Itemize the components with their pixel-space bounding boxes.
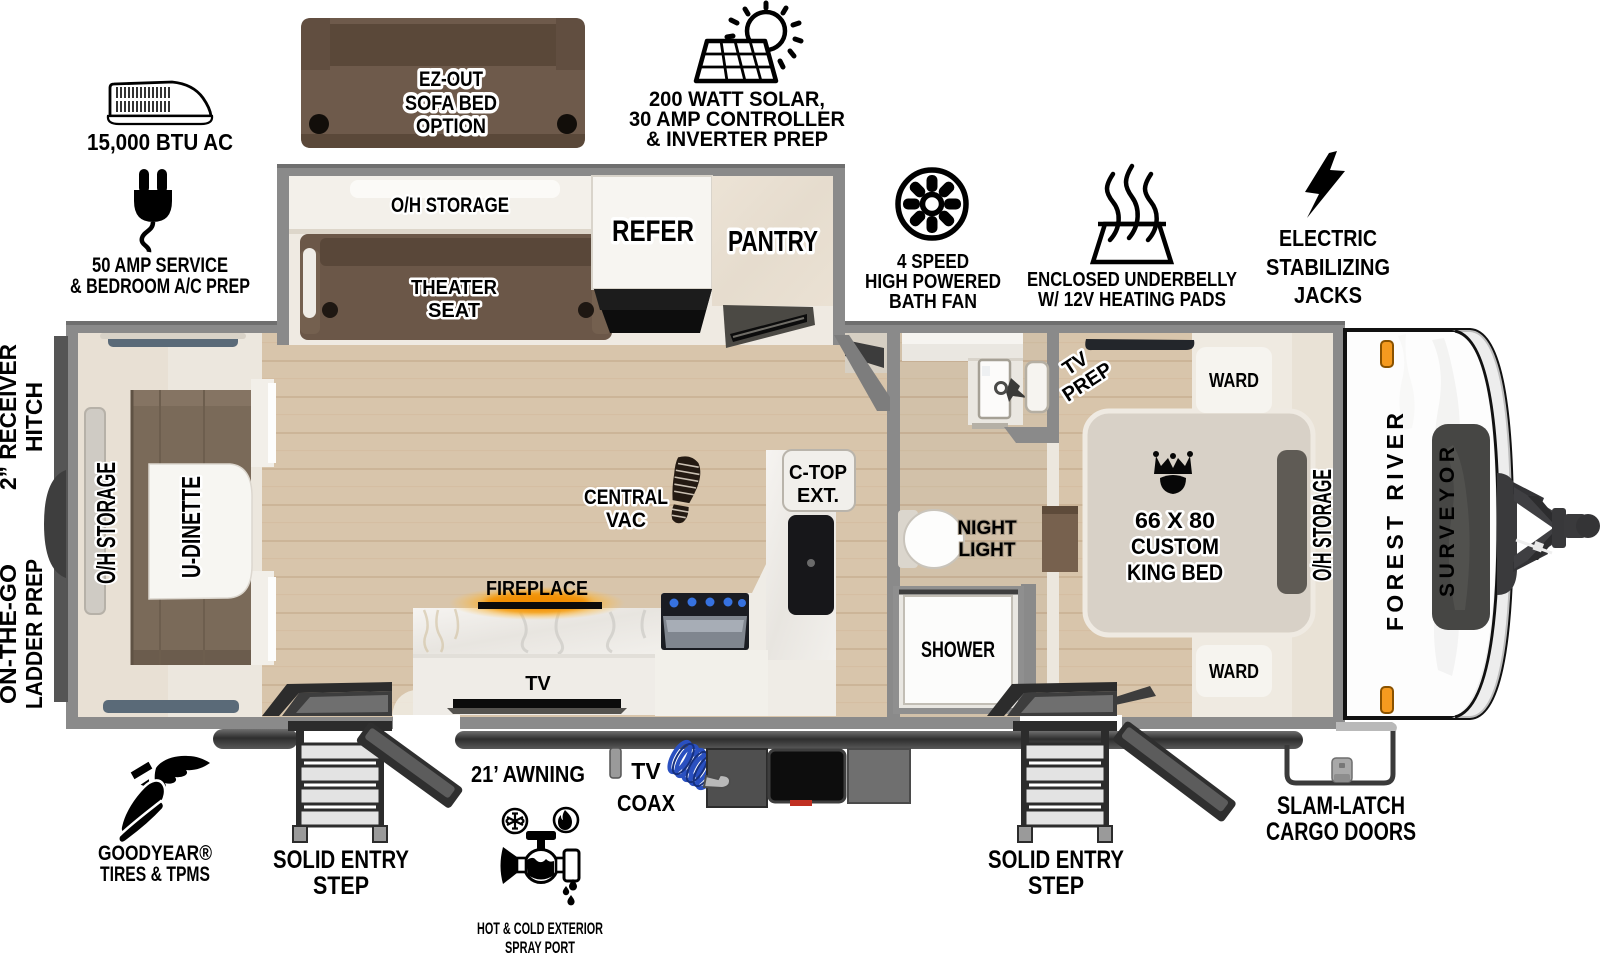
- svg-text:STABILIZING: STABILIZING: [1266, 254, 1390, 280]
- svg-text:STEP: STEP: [1028, 872, 1084, 900]
- svg-text:HITCH: HITCH: [21, 382, 47, 452]
- svg-text:PANTRY: PANTRY: [728, 226, 818, 258]
- svg-text:THEATER: THEATER: [411, 277, 498, 299]
- svg-text:4 SPEED: 4 SPEED: [897, 251, 969, 273]
- svg-text:21’ AWNING: 21’ AWNING: [471, 761, 585, 787]
- svg-text:BATH FAN: BATH FAN: [889, 291, 977, 313]
- svg-text:TV: TV: [631, 758, 661, 784]
- svg-text:2” RECEIVER: 2” RECEIVER: [0, 344, 21, 490]
- svg-text:FOREST RIVER: FOREST RIVER: [1382, 413, 1408, 631]
- svg-text:KING BED: KING BED: [1127, 560, 1223, 585]
- svg-text:WARD: WARD: [1209, 661, 1259, 683]
- svg-text:66 X 80: 66 X 80: [1135, 508, 1215, 533]
- svg-text:WARD: WARD: [1209, 370, 1259, 392]
- svg-text:SOLID ENTRY: SOLID ENTRY: [988, 846, 1124, 874]
- svg-text:STEP: STEP: [313, 872, 369, 900]
- svg-text:TV: TV: [525, 673, 551, 695]
- svg-text:50 AMP SERVICE: 50 AMP SERVICE: [92, 254, 228, 277]
- svg-text:HOT & COLD EXTERIOR: HOT & COLD EXTERIOR: [477, 919, 603, 938]
- svg-text:& INVERTER PREP: & INVERTER PREP: [646, 128, 828, 151]
- svg-text:SEAT: SEAT: [428, 300, 480, 322]
- svg-text:EXT.: EXT.: [797, 485, 839, 507]
- svg-text:TIRES & TPMS: TIRES & TPMS: [100, 863, 210, 886]
- svg-text:REFER: REFER: [612, 215, 694, 248]
- svg-text:SOFA BED: SOFA BED: [405, 92, 497, 115]
- svg-text:O/H STORAGE: O/H STORAGE: [391, 194, 509, 217]
- svg-text:ENCLOSED UNDERBELLY: ENCLOSED UNDERBELLY: [1027, 269, 1238, 291]
- svg-text:SPRAY PORT: SPRAY PORT: [505, 938, 575, 956]
- svg-text:SOLID ENTRY: SOLID ENTRY: [273, 846, 409, 874]
- svg-text:CUSTOM: CUSTOM: [1131, 534, 1219, 559]
- svg-text:JACKS: JACKS: [1294, 282, 1362, 308]
- svg-text:SLAM-LATCH: SLAM-LATCH: [1277, 792, 1405, 820]
- svg-text:NIGHT: NIGHT: [957, 518, 1017, 539]
- svg-text:U-DINETTE: U-DINETTE: [176, 476, 206, 578]
- svg-text:OPTION: OPTION: [416, 115, 486, 138]
- svg-text:FIREPLACE: FIREPLACE: [486, 578, 588, 600]
- svg-text:GOODYEAR®: GOODYEAR®: [98, 842, 212, 865]
- svg-text:CENTRAL: CENTRAL: [584, 486, 668, 509]
- svg-text:LIGHT: LIGHT: [959, 540, 1016, 561]
- svg-text:O/H STORAGE: O/H STORAGE: [91, 462, 121, 584]
- svg-text:ELECTRIC: ELECTRIC: [1279, 225, 1377, 251]
- svg-text:VAC: VAC: [606, 509, 646, 532]
- svg-text:O/H STORAGE: O/H STORAGE: [1307, 469, 1337, 581]
- svg-text:ON-THE-GO: ON-THE-GO: [0, 564, 21, 704]
- svg-text:CARGO DOORS: CARGO DOORS: [1266, 818, 1416, 846]
- svg-text:COAX: COAX: [617, 790, 676, 816]
- svg-text:SHOWER: SHOWER: [921, 637, 995, 662]
- svg-text:C-TOP: C-TOP: [789, 462, 847, 484]
- svg-text:& BEDROOM A/C PREP: & BEDROOM A/C PREP: [70, 275, 250, 298]
- svg-text:15,000 BTU AC: 15,000 BTU AC: [87, 129, 233, 155]
- svg-text:LADDER PREP: LADDER PREP: [21, 559, 47, 709]
- svg-text:EZ-OUT: EZ-OUT: [419, 68, 483, 91]
- svg-text:W/ 12V HEATING PADS: W/ 12V HEATING PADS: [1038, 289, 1226, 311]
- svg-text:HIGH POWERED: HIGH POWERED: [865, 271, 1001, 293]
